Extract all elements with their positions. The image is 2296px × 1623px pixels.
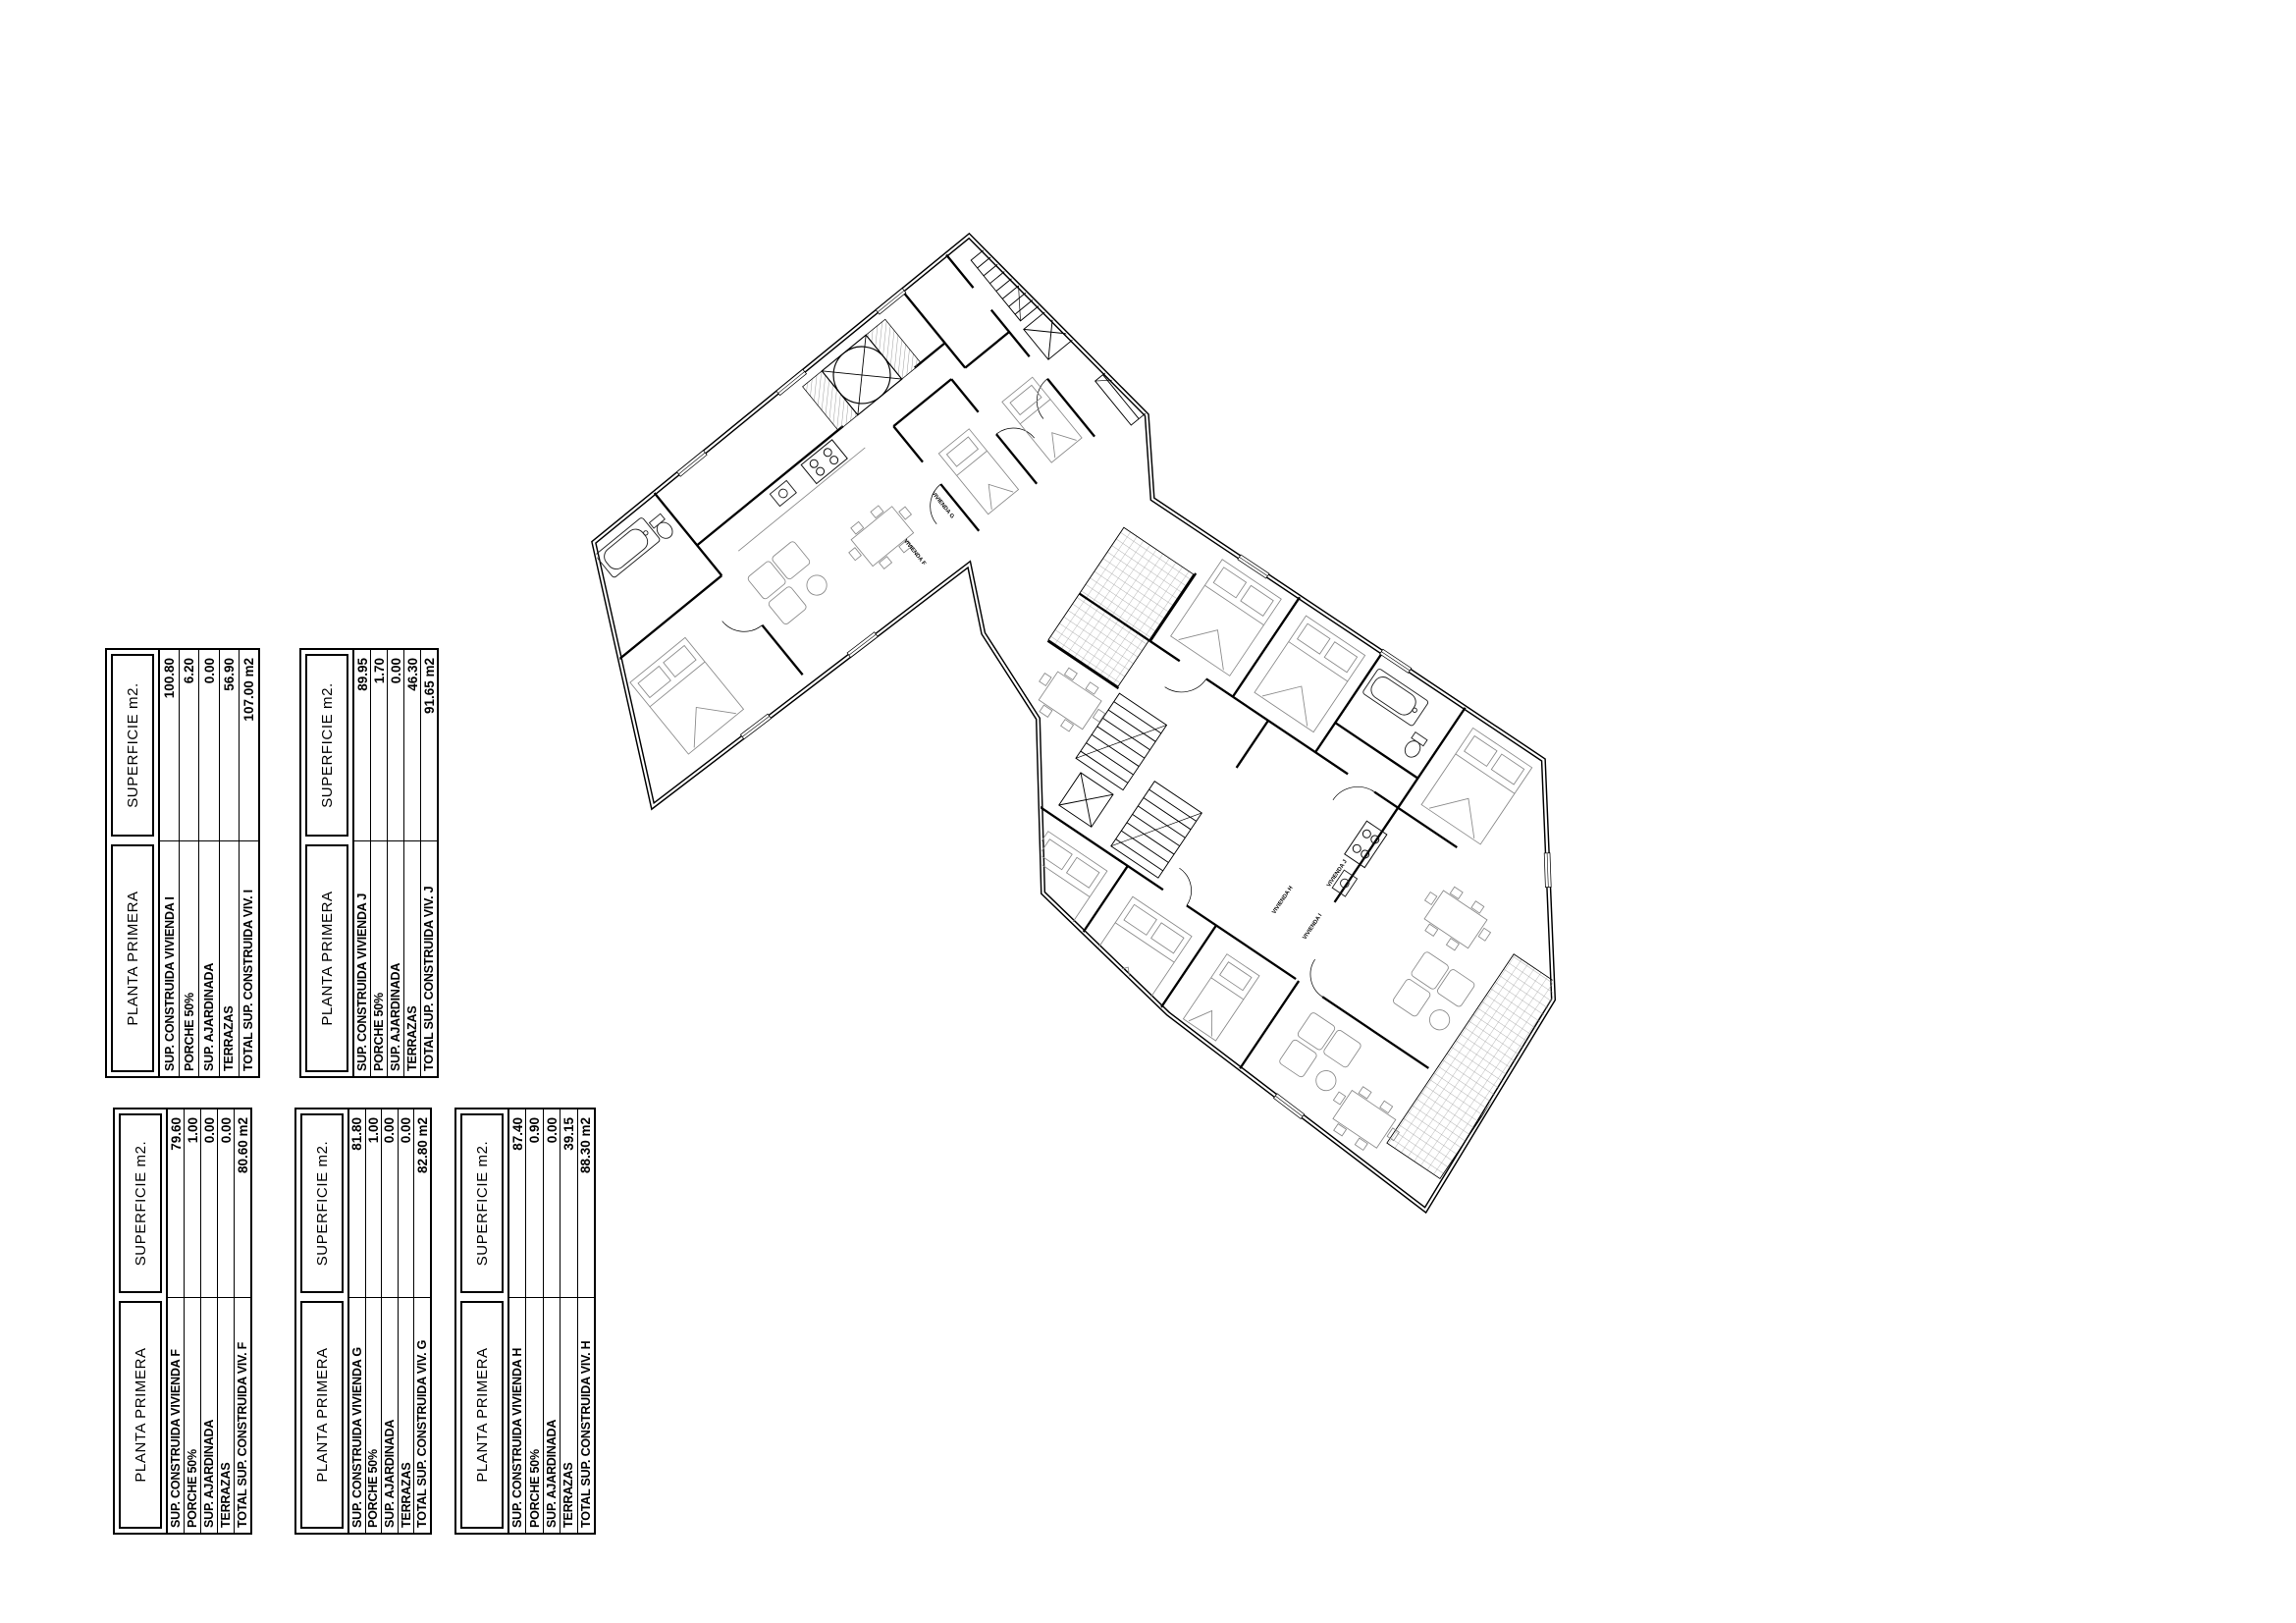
table-row: PORCHE 50%6.20	[180, 650, 199, 1076]
table-row: SUP. CONSTRUIDA VIVIENDA F79.60	[168, 1109, 185, 1533]
row-value: 0.90	[526, 1109, 542, 1297]
table-row: TERRAZAS0.00	[399, 1109, 415, 1533]
floor-plan: VIVIENDA G VIVIENDA F VIVIENDA H VIVIEND…	[550, 20, 1993, 1443]
row-value: 0.00	[382, 1109, 398, 1297]
row-value: 0.00	[199, 650, 218, 840]
row-label: TERRAZAS	[218, 1297, 234, 1533]
drawing-sheet: PLANTA PRIMERA SUPERFICIE m2. SUP. CONST…	[0, 0, 2296, 1623]
planta-header: PLANTA PRIMERA	[460, 1301, 504, 1529]
table-row: TERRAZAS56.90	[220, 650, 240, 1076]
table-row: SUP. AJARDINADA0.00	[201, 1109, 218, 1533]
row-value: 87.40	[509, 1109, 525, 1297]
row-value: 89.95	[354, 650, 370, 840]
row-label: SUP. CONSTRUIDA VIVIENDA F	[168, 1297, 184, 1533]
area-table-vivienda-i: PLANTA PRIMERA SUPERFICIE m2. SUP. CONST…	[105, 648, 260, 1078]
row-value: 80.60 m2	[235, 1109, 250, 1297]
row-label: SUP. CONSTRUIDA VIVIENDA G	[349, 1297, 365, 1533]
area-table-vivienda-g: PLANTA PRIMERA SUPERFICIE m2. SUP. CONST…	[294, 1108, 432, 1535]
superficie-header: SUPERFICIE m2.	[300, 1113, 344, 1293]
table-row: SUP. AJARDINADA0.00	[199, 650, 219, 1076]
double-bed	[1105, 236, 1219, 352]
row-label: SUP. AJARDINADA	[382, 1297, 398, 1533]
row-value: 100.80	[160, 650, 179, 840]
table-row: TERRAZAS46.30	[404, 650, 421, 1076]
planta-header: PLANTA PRIMERA	[111, 844, 154, 1072]
row-label: SUP. AJARDINADA	[388, 840, 403, 1076]
row-label: SUP. CONSTRUIDA VIVIENDA H	[509, 1297, 525, 1533]
table-row: SUP. CONSTRUIDA VIVIENDA H87.40	[509, 1109, 526, 1533]
row-label: TERRAZAS	[404, 840, 420, 1076]
row-value: 6.20	[180, 650, 198, 840]
table-header-row: PLANTA PRIMERA SUPERFICIE m2.	[301, 650, 354, 1076]
superficie-header: SUPERFICIE m2.	[305, 654, 348, 837]
row-label: PORCHE 50%	[366, 1297, 382, 1533]
table-row: SUP. AJARDINADA0.00	[388, 650, 404, 1076]
row-label: PORCHE 50%	[180, 840, 198, 1076]
table-row: PORCHE 50%0.90	[526, 1109, 543, 1533]
row-label: TOTAL SUP. CONSTRUIDA VIV. I	[240, 840, 258, 1076]
row-label: PORCHE 50%	[371, 840, 387, 1076]
row-label: TERRAZAS	[220, 840, 239, 1076]
table-header-row: PLANTA PRIMERA SUPERFICIE m2.	[456, 1109, 509, 1533]
table-total-row: TOTAL SUP. CONSTRUIDA VIV. F80.60 m2	[235, 1109, 250, 1533]
row-label: TOTAL SUP. CONSTRUIDA VIV. G	[414, 1297, 430, 1533]
table-row: SUP. AJARDINADA0.00	[382, 1109, 399, 1533]
row-value: 0.00	[218, 1109, 234, 1297]
row-value: 56.90	[220, 650, 239, 840]
row-value: 0.00	[388, 650, 403, 840]
row-value: 1.00	[185, 1109, 200, 1297]
table-total-row: TOTAL SUP. CONSTRUIDA VIV. I107.00 m2	[240, 650, 258, 1076]
area-table-vivienda-f: PLANTA PRIMERA SUPERFICIE m2. SUP. CONST…	[113, 1108, 252, 1535]
table-row: TERRAZAS0.00	[218, 1109, 235, 1533]
table-row: PORCHE 50%1.00	[185, 1109, 201, 1533]
table-row: SUP. CONSTRUIDA VIVIENDA I100.80	[160, 650, 180, 1076]
table-header-row: PLANTA PRIMERA SUPERFICIE m2.	[296, 1109, 349, 1533]
table-header-row: PLANTA PRIMERA SUPERFICIE m2.	[107, 650, 160, 1076]
row-value: 82.80 m2	[414, 1109, 430, 1297]
table-header-row: PLANTA PRIMERA SUPERFICIE m2.	[115, 1109, 168, 1533]
planta-header: PLANTA PRIMERA	[305, 844, 348, 1072]
superficie-header: SUPERFICIE m2.	[119, 1113, 162, 1293]
row-value: 1.70	[371, 650, 387, 840]
row-label: SUP. AJARDINADA	[199, 840, 218, 1076]
superficie-header: SUPERFICIE m2.	[111, 654, 154, 837]
planta-header: PLANTA PRIMERA	[300, 1301, 344, 1529]
table-row: SUP. CONSTRUIDA VIVIENDA J89.95	[354, 650, 371, 1076]
row-label: TERRAZAS	[399, 1297, 414, 1533]
row-value: 107.00 m2	[240, 650, 258, 840]
row-value: 0.00	[399, 1109, 414, 1297]
row-value: 0.00	[201, 1109, 217, 1297]
row-value: 81.80	[349, 1109, 365, 1297]
area-table-vivienda-j: PLANTA PRIMERA SUPERFICIE m2. SUP. CONST…	[299, 648, 439, 1078]
table-row: PORCHE 50%1.00	[366, 1109, 383, 1533]
row-label: TOTAL SUP. CONSTRUIDA VIV. J	[421, 840, 437, 1076]
table-total-row: TOTAL SUP. CONSTRUIDA VIV. G82.80 m2	[414, 1109, 430, 1533]
row-value: 91.65 m2	[421, 650, 437, 840]
row-label: TOTAL SUP. CONSTRUIDA VIV. F	[235, 1297, 250, 1533]
row-value: 79.60	[168, 1109, 184, 1297]
table-row: SUP. CONSTRUIDA VIVIENDA G81.80	[349, 1109, 366, 1533]
row-value: 1.00	[366, 1109, 382, 1297]
superficie-header: SUPERFICIE m2.	[460, 1113, 504, 1293]
row-label: SUP. AJARDINADA	[201, 1297, 217, 1533]
table-total-row: TOTAL SUP. CONSTRUIDA VIV. J91.65 m2	[421, 650, 437, 1076]
table-row: PORCHE 50%1.70	[371, 650, 388, 1076]
planta-header: PLANTA PRIMERA	[119, 1301, 162, 1529]
row-label: SUP. CONSTRUIDA VIVIENDA J	[354, 840, 370, 1076]
row-label: PORCHE 50%	[526, 1297, 542, 1533]
row-label: SUP. CONSTRUIDA VIVIENDA I	[160, 840, 179, 1076]
row-label: PORCHE 50%	[185, 1297, 200, 1533]
row-value: 46.30	[404, 650, 420, 840]
